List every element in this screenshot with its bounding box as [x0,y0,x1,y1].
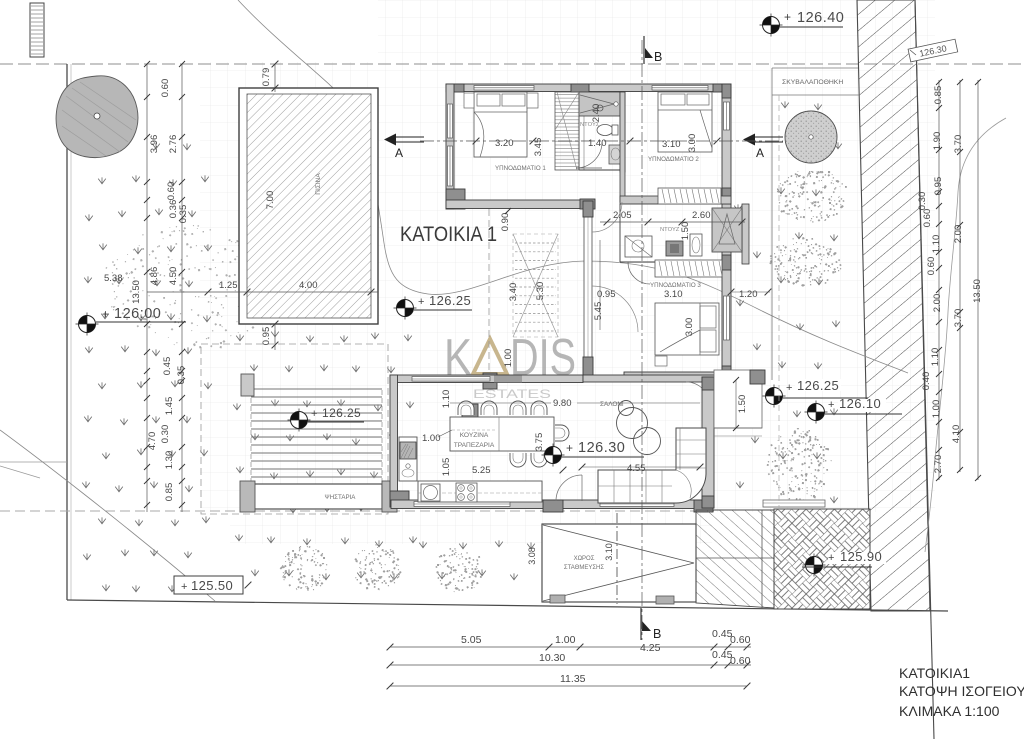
svg-text:0.30: 0.30 [917,192,928,211]
svg-text:4.86: 4.86 [149,267,160,286]
svg-text:+: + [566,441,573,455]
svg-text:A: A [395,146,403,160]
svg-text:ΣΤΑΘΜΕΥΣΗΣ: ΣΤΑΘΜΕΥΣΗΣ [564,565,605,571]
svg-text:ΚΛΙΜΑΚΑ 1:100: ΚΛΙΜΑΚΑ 1:100 [899,703,1000,719]
svg-text:A: A [756,146,764,160]
svg-text:10.30: 10.30 [539,652,565,664]
svg-text:13.50: 13.50 [131,280,142,304]
svg-text:ΠΙΣΙΝΑ: ΠΙΣΙΝΑ [315,173,322,195]
svg-text:1.45: 1.45 [164,397,175,416]
svg-text:+: + [828,399,834,411]
svg-text:B: B [654,50,662,64]
svg-text:1.05: 1.05 [441,458,452,477]
svg-text:1.25: 1.25 [219,280,238,291]
svg-text:3.96: 3.96 [149,135,160,154]
svg-text:ΣΑΛΟΝΙ: ΣΑΛΟΝΙ [600,401,624,408]
svg-text:2.60: 2.60 [692,210,711,221]
svg-text:3.10: 3.10 [604,543,614,561]
svg-text:+: + [418,296,424,308]
svg-text:9.80: 9.80 [553,398,572,409]
svg-text:3.45: 3.45 [533,138,544,157]
svg-text:5.30: 5.30 [535,282,546,301]
svg-text:1.10: 1.10 [930,348,941,367]
svg-text:1.00: 1.00 [555,634,576,646]
svg-text:11.35: 11.35 [560,673,586,685]
svg-text:0.79: 0.79 [261,68,272,87]
svg-text:0.35: 0.35 [178,205,189,224]
svg-text:1.00: 1.00 [422,433,441,444]
svg-text:1.50: 1.50 [680,222,691,241]
svg-text:126.10: 126.10 [839,396,881,411]
svg-text:4.70: 4.70 [147,432,158,451]
svg-text:1.40: 1.40 [588,138,607,149]
svg-text:0.90: 0.90 [500,213,511,232]
svg-text:ΥΠΝΟΔΩΜΑΤΙΟ 2: ΥΠΝΟΔΩΜΑΤΙΟ 2 [648,156,699,163]
svg-text:+: + [311,408,317,420]
svg-text:1.00: 1.00 [931,400,942,419]
svg-text:3.75: 3.75 [534,433,545,452]
svg-text:1.50: 1.50 [737,395,748,414]
svg-text:2.00: 2.00 [932,294,943,313]
svg-text:1.10: 1.10 [441,390,452,409]
svg-text:2.40: 2.40 [591,104,602,123]
svg-text:126.30: 126.30 [578,440,625,456]
svg-text:+: + [786,382,792,394]
svg-text:1.30: 1.30 [164,451,175,470]
svg-text:0.85: 0.85 [933,86,944,105]
svg-text:0.35: 0.35 [176,366,187,385]
svg-text:5.38: 5.38 [104,273,123,284]
svg-text:3.00: 3.00 [684,318,695,337]
svg-text:126.40: 126.40 [797,10,844,26]
svg-text:0.45: 0.45 [162,357,173,376]
svg-text:ΝΤΟΥΖ: ΝΤΟΥΖ [660,227,680,233]
svg-text:2.76: 2.76 [168,135,179,154]
svg-text:4.25: 4.25 [640,642,661,654]
svg-text:3.70: 3.70 [953,135,964,154]
svg-text:3.00: 3.00 [687,134,698,153]
svg-text:2.05: 2.05 [613,210,632,221]
svg-text:0.60: 0.60 [160,79,171,98]
svg-text:ΥΠΝΟΔΩΜΑΤΙΟ 1: ΥΠΝΟΔΩΜΑΤΙΟ 1 [495,165,546,172]
svg-text:0.60: 0.60 [922,209,933,228]
svg-text:0.30: 0.30 [160,425,171,444]
svg-text:3.20: 3.20 [495,138,514,149]
svg-text:ΨΗΣΤΑΡΙΑ: ΨΗΣΤΑΡΙΑ [325,494,357,501]
svg-text:4.00: 4.00 [299,280,318,291]
svg-text:0.95: 0.95 [933,177,944,196]
svg-text:2.00: 2.00 [953,225,964,244]
svg-text:+: + [102,307,109,321]
svg-text:3.10: 3.10 [664,289,683,300]
svg-text:0.95: 0.95 [261,327,272,346]
svg-text:0.60: 0.60 [166,182,177,201]
svg-text:ΚΑΤΟΨΗ ΙΣΟΓΕΙΟΥ: ΚΑΤΟΨΗ ΙΣΟΓΕΙΟΥ [899,683,1024,699]
svg-text:1.90: 1.90 [932,132,943,151]
svg-text:ΣΚΥΒΑΛΑΠΟΘΗΚΗ: ΣΚΥΒΑΛΑΠΟΘΗΚΗ [782,79,843,86]
svg-text:126.25: 126.25 [322,406,361,420]
svg-text:3.40: 3.40 [508,283,519,302]
svg-text:ESTATES: ESTATES [473,389,551,401]
svg-text:1.10: 1.10 [931,235,942,254]
svg-text:4.55: 4.55 [627,463,646,474]
svg-text:ΤΡΑΠΕΖΑΡΙΑ: ΤΡΑΠΕΖΑΡΙΑ [454,442,495,449]
svg-text:4.50: 4.50 [168,267,179,286]
svg-text:+: + [181,581,187,593]
svg-text:1.00: 1.00 [503,349,514,368]
svg-text:ΥΠΝΟΔΩΜΑΤΙΟ 3: ΥΠΝΟΔΩΜΑΤΙΟ 3 [650,282,701,289]
svg-text:3.70: 3.70 [953,309,964,328]
svg-text:ΚΟΥΖΙΝΑ: ΚΟΥΖΙΝΑ [460,432,489,439]
svg-text:0.60: 0.60 [730,634,751,646]
svg-text:4.10: 4.10 [951,425,962,444]
svg-text:+: + [784,10,791,24]
svg-text:0.60: 0.60 [926,257,937,276]
svg-text:5.25: 5.25 [472,465,491,476]
svg-text:0.85: 0.85 [164,483,175,502]
svg-text:126.25: 126.25 [429,293,471,308]
svg-text:5.45: 5.45 [593,302,604,321]
svg-text:ΚΑΤΟΙΚΙΑ 1: ΚΑΤΟΙΚΙΑ 1 [400,223,497,246]
svg-text:126:00: 126:00 [114,306,161,322]
svg-text:+: + [828,552,834,564]
svg-text:5.05: 5.05 [461,634,482,646]
svg-text:7.00: 7.00 [265,191,276,210]
svg-text:ΚΑΤΟΙΚΙΑ1: ΚΑΤΟΙΚΙΑ1 [899,665,970,681]
svg-text:0.40: 0.40 [921,372,932,391]
svg-text:2.70: 2.70 [933,455,944,474]
svg-text:126.25: 126.25 [797,378,839,393]
svg-text:13.50: 13.50 [972,279,983,303]
svg-text:ΧΩΡΟΣ: ΧΩΡΟΣ [574,556,595,562]
svg-text:3.08: 3.08 [527,547,537,565]
svg-text:B: B [653,627,661,641]
svg-text:125.50: 125.50 [191,578,233,593]
svg-text:0.60: 0.60 [730,655,751,667]
svg-text:1.20: 1.20 [739,289,758,300]
svg-text:125.90: 125.90 [840,549,882,564]
